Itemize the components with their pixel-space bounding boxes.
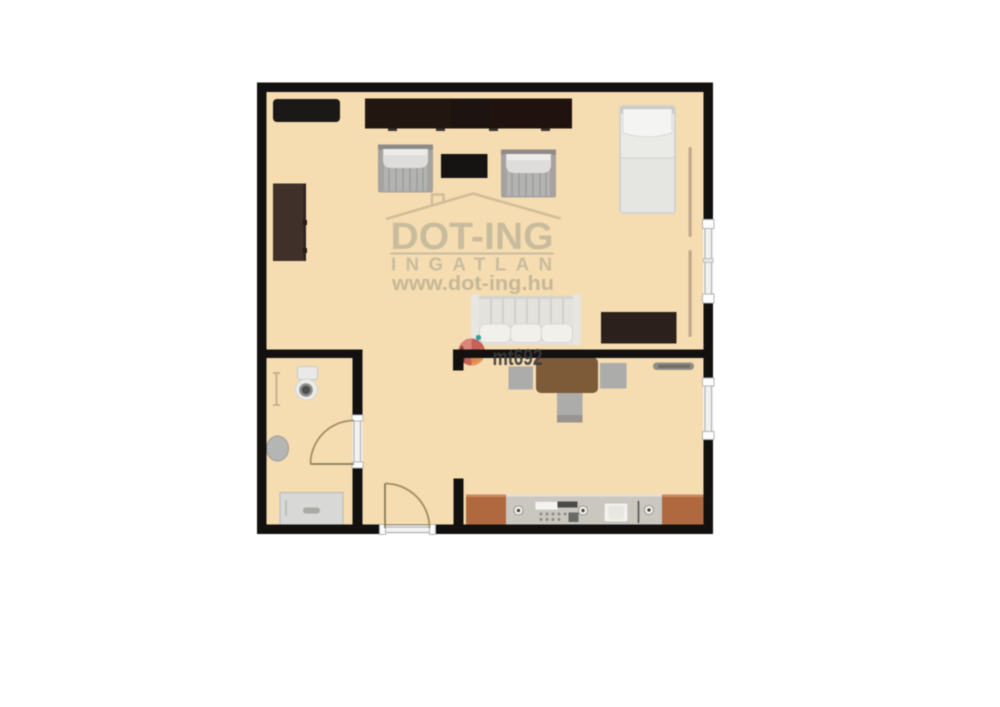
svg-text:mt692: mt692 bbox=[493, 344, 543, 370]
svg-text:www.dot-ing.hu: www.dot-ing.hu bbox=[391, 273, 554, 295]
svg-text:DOT-ING: DOT-ING bbox=[391, 216, 554, 258]
